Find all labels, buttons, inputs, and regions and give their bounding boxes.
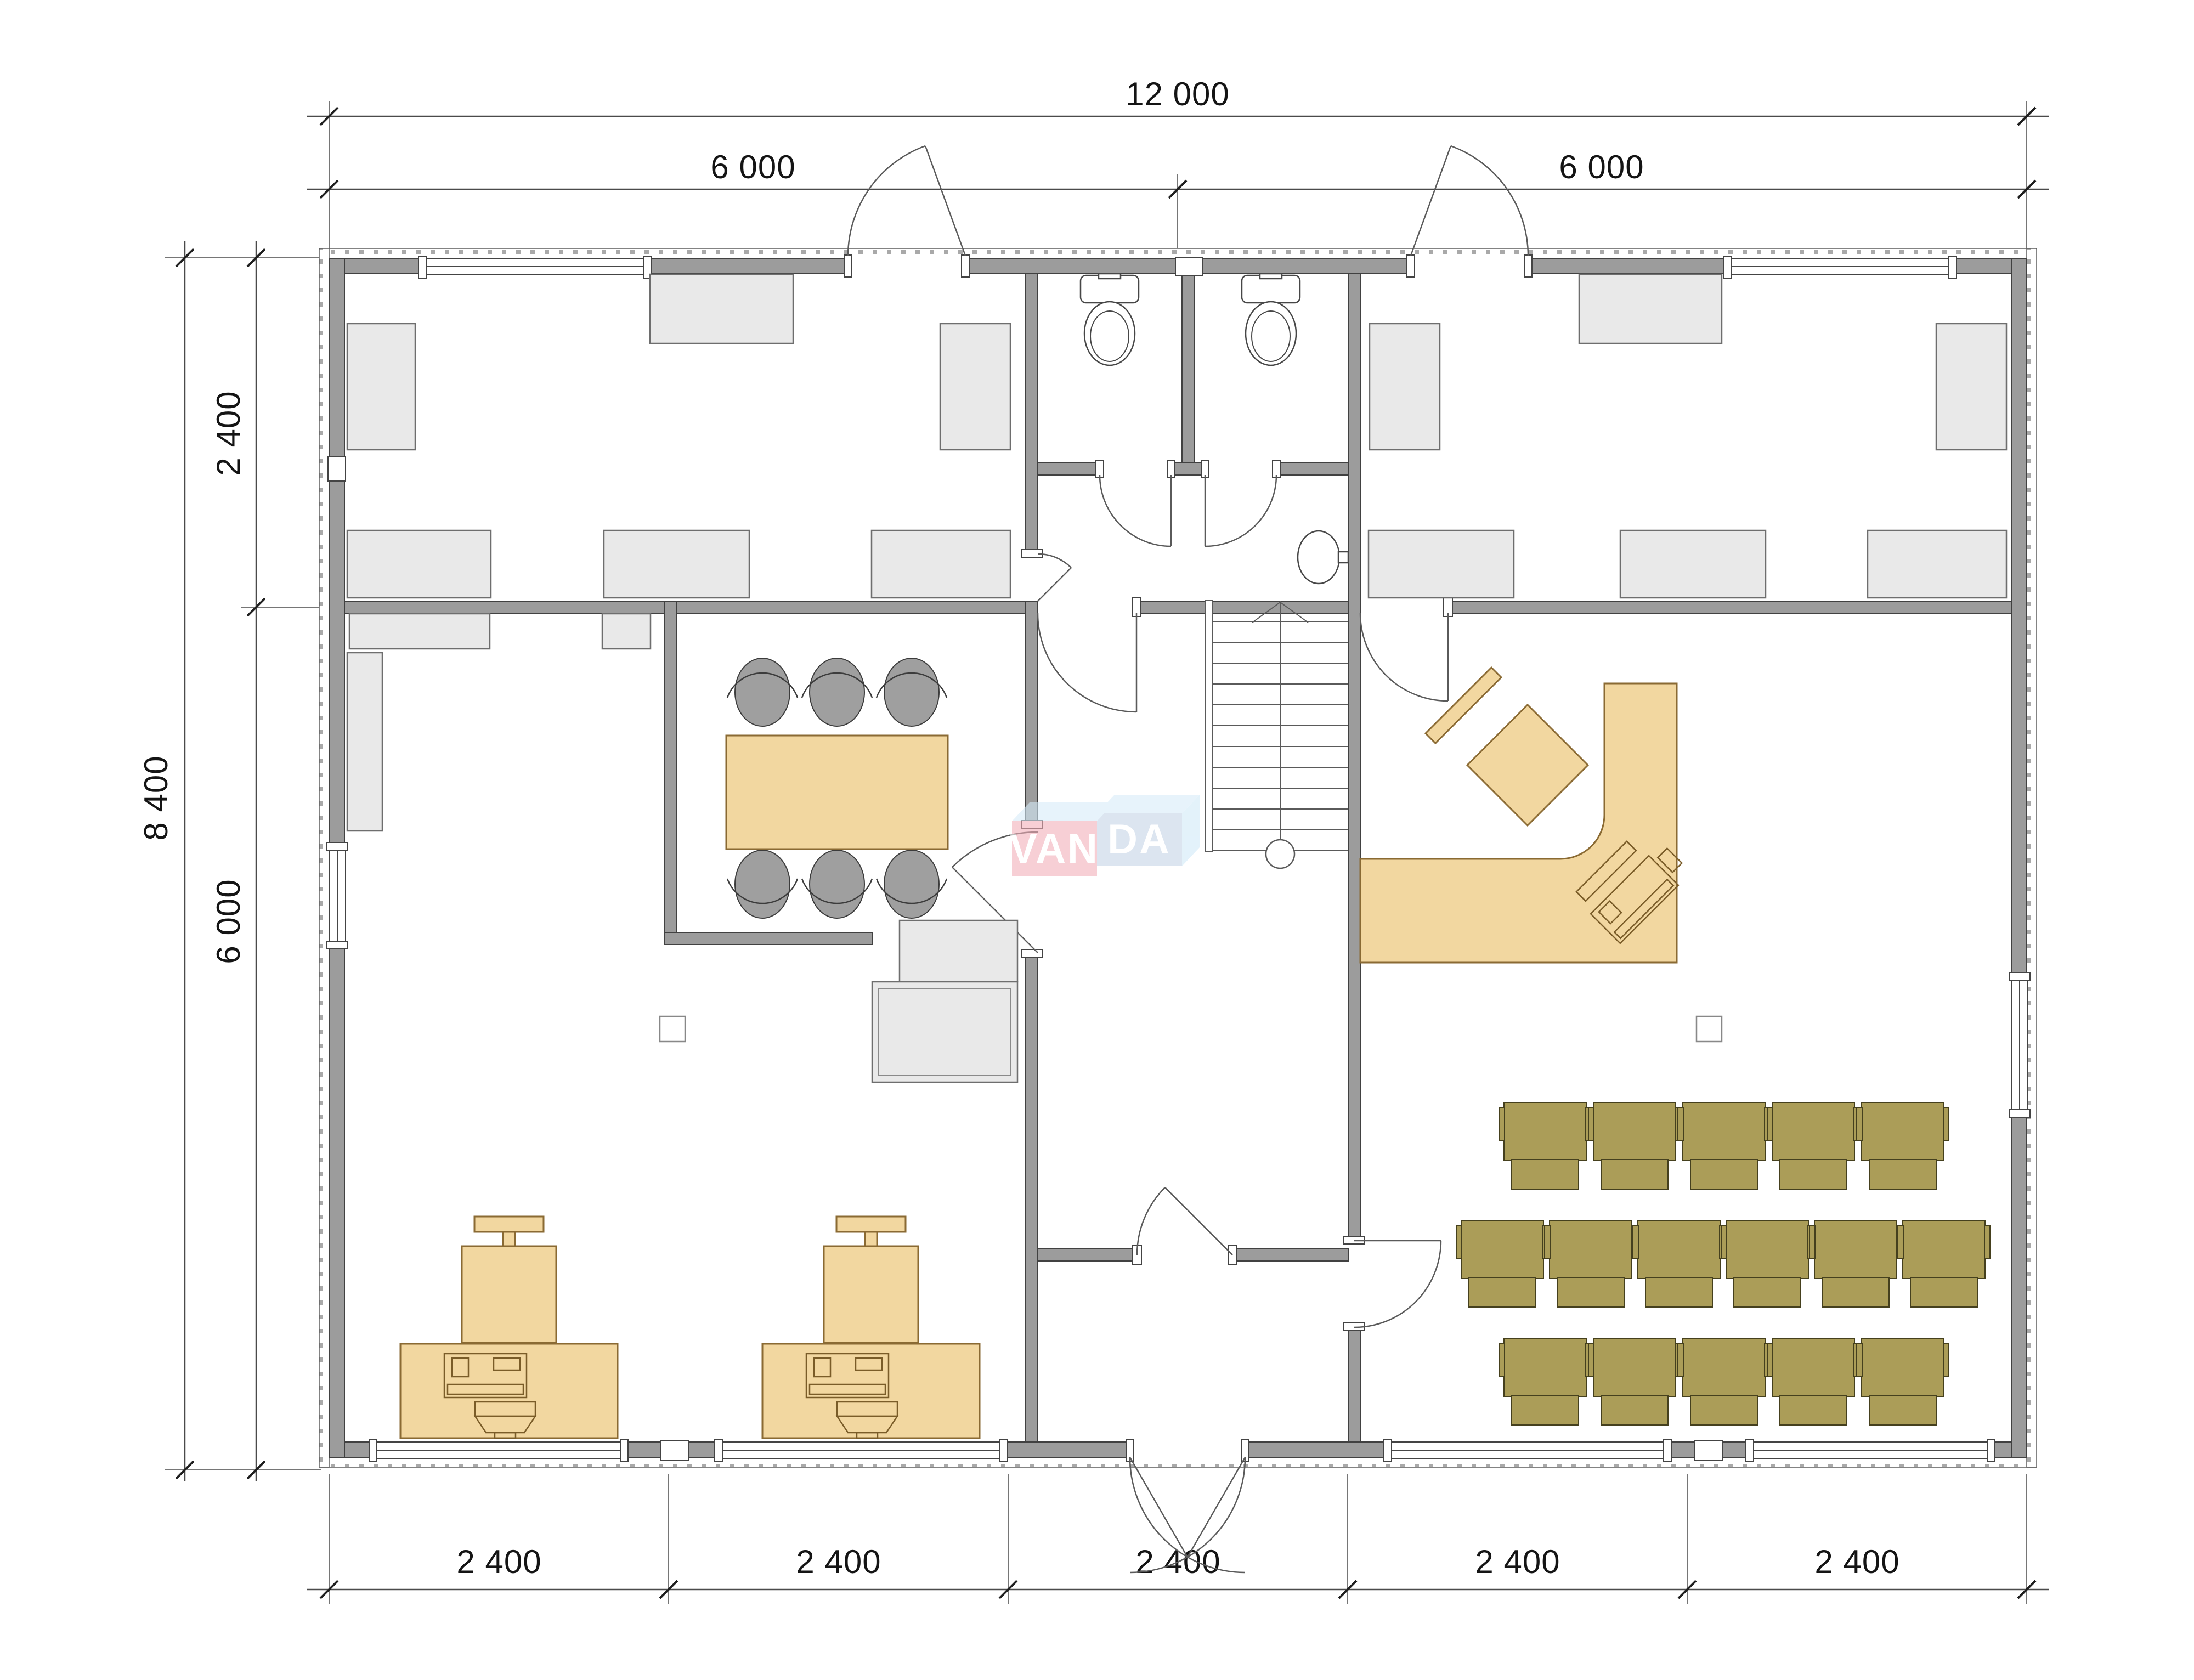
window — [1384, 1440, 1671, 1462]
wc-wall — [1276, 463, 1348, 475]
audience-chair — [1499, 1338, 1591, 1425]
interior-wall — [1026, 274, 1038, 554]
audience-chair — [1678, 1338, 1770, 1425]
floor-plan-svg: 12 000 6 000 6 000 8 400 2 400 6 000 2 4… — [0, 0, 2194, 1680]
workstations — [400, 1217, 980, 1438]
window — [1746, 1440, 1995, 1462]
cabinet — [1369, 530, 1514, 598]
sanitary — [1081, 274, 1348, 584]
watermark-box-top — [1012, 802, 1115, 821]
audience-chair — [1499, 1102, 1591, 1189]
sink-symbol — [1298, 531, 1348, 584]
toilet-symbol — [1242, 274, 1300, 365]
audience-chair — [1588, 1102, 1681, 1189]
audience-chair — [1721, 1220, 1813, 1307]
cabinet — [1936, 324, 2006, 450]
cabinet — [347, 324, 415, 450]
interior-wall — [1348, 1327, 1360, 1442]
hall-double-door — [1133, 1187, 1237, 1264]
window — [715, 1440, 1008, 1462]
window — [419, 256, 651, 278]
cabinet — [940, 324, 1010, 450]
office-to-wc-door — [1021, 550, 1071, 601]
vestibule-to-room-door — [1344, 1236, 1441, 1331]
dim-label-bottom-1: 2 400 — [456, 1543, 541, 1580]
stair-rail — [1205, 601, 1213, 851]
meeting-room-wall — [665, 932, 872, 944]
cabinet — [1370, 324, 1440, 450]
dim-label-bottom-2: 2 400 — [796, 1543, 881, 1580]
interior-wall-horizontal — [1136, 601, 1348, 613]
audience-chair — [1588, 1338, 1681, 1425]
watermark-text-left: VAN — [1009, 825, 1099, 872]
wc-wall — [1171, 463, 1205, 475]
exterior-door-right — [1407, 146, 1532, 277]
meeting-table — [726, 736, 948, 849]
cabinet — [650, 274, 793, 343]
audience-chair — [1545, 1220, 1637, 1307]
cabinet — [1620, 530, 1766, 598]
workstation — [762, 1217, 980, 1438]
meeting-room-wall — [665, 601, 677, 944]
interior-wall — [1348, 274, 1360, 1241]
audience-chair — [1810, 1220, 1902, 1307]
hall-wall — [1232, 1249, 1348, 1261]
wall-vent-block — [1175, 257, 1203, 276]
chair-seat — [462, 1246, 556, 1343]
dim-label-side-total: 8 400 — [138, 755, 174, 840]
dim-label-bottom-4: 2 400 — [1475, 1543, 1560, 1580]
cabinet — [872, 530, 1010, 598]
floor-plan-drawing: 12 000 6 000 6 000 8 400 2 400 6 000 2 4… — [0, 0, 2194, 1680]
cabinets — [347, 274, 2006, 1082]
cabinet — [1579, 274, 1722, 343]
dim-label-top-right: 6 000 — [1559, 149, 1644, 185]
toilet-symbol — [1081, 274, 1139, 365]
dim-label-top-left: 6 000 — [710, 149, 795, 185]
hall-wall — [1038, 1249, 1137, 1261]
audience-chair — [1633, 1220, 1725, 1307]
interior-wall — [1026, 953, 1038, 1442]
wc-door-right — [1201, 461, 1280, 546]
dim-label-side-upper: 2 400 — [210, 391, 247, 476]
audience-chair — [1456, 1220, 1548, 1307]
audience-chair — [1678, 1102, 1770, 1189]
cabinet — [349, 614, 490, 649]
window — [369, 1440, 628, 1462]
wall-block — [328, 456, 346, 481]
reception-chair-backrest — [1426, 668, 1501, 743]
kitchen-counter — [872, 920, 1017, 1082]
dim-label-bottom-5: 2 400 — [1814, 1543, 1899, 1580]
wall-block — [1695, 1441, 1723, 1461]
dim-label-side-lower: 6 000 — [210, 879, 247, 964]
stair-direction-arrow — [1252, 601, 1308, 868]
reception — [1360, 668, 1691, 963]
cabinet — [604, 530, 749, 598]
reception-room-door — [1360, 598, 1452, 701]
cabinet — [347, 530, 491, 598]
staircase — [1205, 601, 1348, 868]
wc-wall — [1038, 463, 1100, 475]
cabinet — [1868, 530, 2006, 598]
window — [327, 842, 348, 949]
cabinet — [602, 614, 651, 649]
wc-divider-wall — [1182, 274, 1194, 463]
audience-chair-rows — [1456, 1102, 1990, 1425]
audience-chair — [1767, 1338, 1859, 1425]
audience-chair — [1767, 1102, 1859, 1189]
floor-marker — [1697, 1016, 1722, 1042]
window — [1724, 256, 1956, 278]
wall-block — [661, 1441, 689, 1461]
floor-marker — [660, 1016, 685, 1042]
meeting-room — [726, 658, 948, 918]
interior-wall — [1026, 601, 1038, 828]
vanda-watermark: VAN DA — [1009, 795, 1200, 876]
hallway-door — [1038, 598, 1141, 712]
watermark-text-right: DA — [1107, 816, 1171, 863]
dim-label-top-total: 12 000 — [1126, 76, 1230, 112]
chair-stem — [865, 1232, 877, 1246]
reception-chair-seat — [1467, 705, 1588, 825]
exterior-door-left — [844, 146, 969, 277]
audience-chair — [1857, 1102, 1949, 1189]
chair-seat — [824, 1246, 918, 1343]
workstation — [400, 1217, 618, 1438]
chair-stem — [503, 1232, 515, 1246]
exterior-wall-right — [2011, 258, 2027, 1457]
chair-backrest — [474, 1217, 544, 1232]
interior-wall-horizontal — [1448, 601, 2011, 613]
interior-wall-horizontal — [344, 601, 1026, 613]
window — [2009, 972, 2030, 1117]
audience-chair — [1857, 1338, 1949, 1425]
wc-door-left — [1096, 461, 1175, 546]
chair-backrest — [836, 1217, 906, 1232]
audience-chair — [1898, 1220, 1990, 1307]
cabinet — [347, 653, 382, 831]
